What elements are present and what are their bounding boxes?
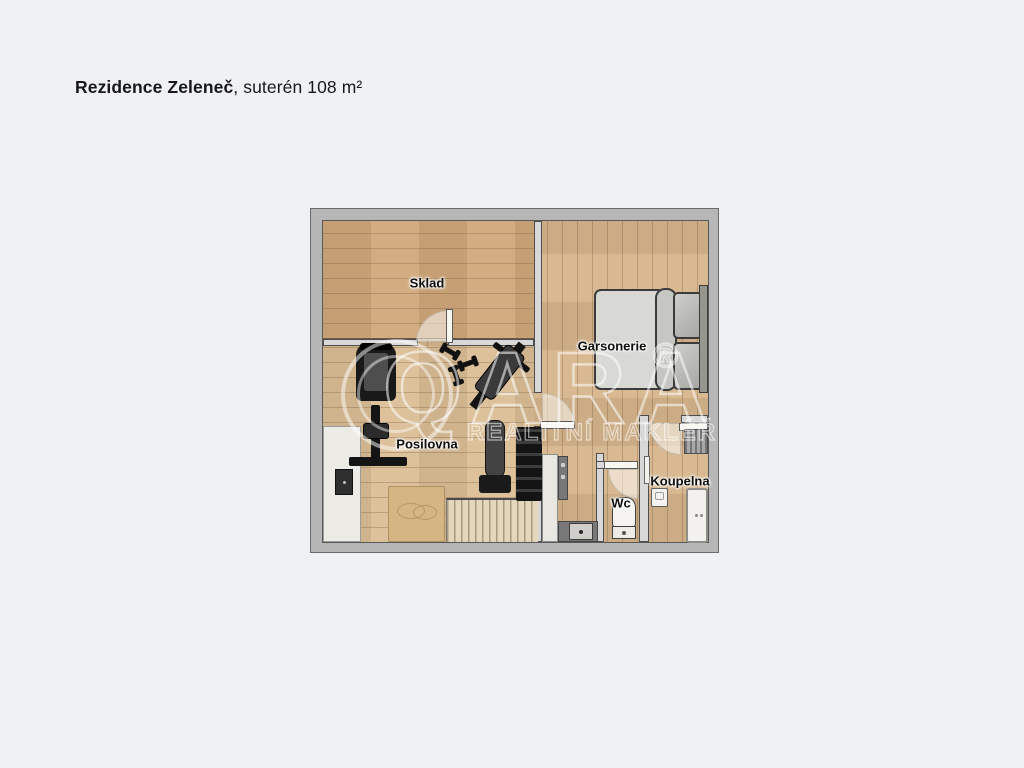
room-label-sklad: Sklad <box>410 276 445 291</box>
sklad-door-leaf <box>446 309 453 343</box>
kitchenette-counter-vertical <box>558 456 568 500</box>
posilovna-door-leaf <box>540 421 575 429</box>
kitchenette-sink <box>569 523 593 540</box>
rug <box>388 486 445 542</box>
room-label-wc: Wc <box>611 496 631 511</box>
multi-gym-seat <box>363 423 389 439</box>
washing-machine <box>684 429 708 454</box>
room-label-koupelna: Koupelna <box>650 474 709 489</box>
room-label-garsonerie: Garsonerie <box>578 339 647 354</box>
kitchenette-cabinet <box>542 454 558 542</box>
wall-koupelna-top-right <box>681 415 708 423</box>
stove-panel <box>335 469 353 495</box>
page-title-bold: Rezidence Zeleneč <box>75 77 233 97</box>
multi-gym-crossbar <box>349 457 407 466</box>
treadmill-deck <box>364 353 388 391</box>
page-title: Rezidence Zeleneč, suterén 108 m² <box>75 77 362 98</box>
room-label-posilovna: Posilovna <box>396 437 457 452</box>
dumbbell-rack <box>516 427 542 501</box>
floor-plan: QARA ® REALITNÍ MAKLÉŘ Sklad Garsonerie … <box>310 208 719 553</box>
towel-radiator <box>644 456 650 484</box>
flat-bench-base <box>479 475 511 493</box>
toilet-tank <box>612 526 636 539</box>
treadmill-console <box>360 343 392 350</box>
bed-headboard <box>699 285 708 393</box>
page-title-rest: , suterén 108 m² <box>233 77 362 97</box>
flat-bench-pad <box>485 420 505 478</box>
wc-door-leaf <box>604 461 638 469</box>
bathtub <box>686 488 708 543</box>
bathroom-sink <box>651 488 668 507</box>
staircase <box>446 498 538 542</box>
wall-center-upper <box>534 221 542 393</box>
